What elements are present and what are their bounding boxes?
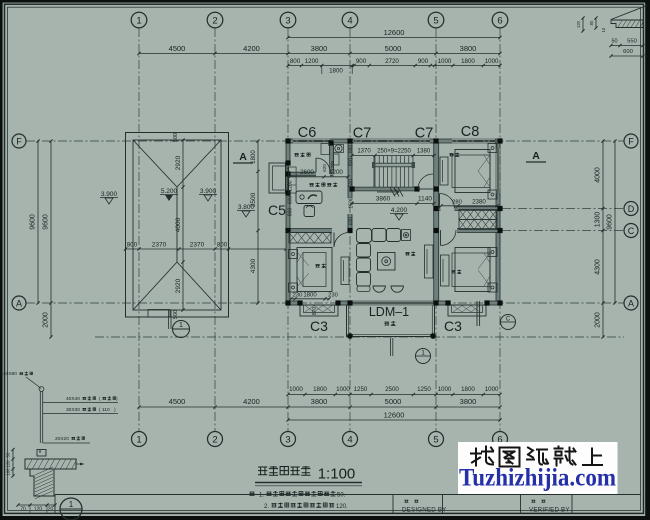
svg-text:550: 550 [627, 39, 637, 45]
svg-text:1.: 1. [259, 493, 264, 499]
svg-text:): ) [116, 396, 118, 402]
svg-text:(: ( [99, 407, 101, 413]
svg-text:30X30: 30X30 [66, 407, 80, 413]
svg-text:50: 50 [611, 39, 617, 45]
svg-text:40X80: 40X80 [3, 371, 17, 377]
svg-text:VERIFIED BY: VERIFIED BY [529, 507, 570, 514]
svg-text:20X20: 20X20 [55, 436, 69, 442]
svg-text:20: 20 [48, 507, 54, 513]
svg-text:120.: 120. [336, 504, 348, 510]
svg-text:100: 100 [6, 468, 11, 476]
svg-text:Tuzhizhijia.com: Tuzhizhijia.com [459, 463, 616, 492]
svg-text:120: 120 [6, 460, 11, 468]
svg-text:(: ( [99, 396, 101, 402]
svg-text:40X40: 40X40 [66, 396, 80, 402]
svg-text:2.: 2. [264, 504, 269, 510]
svg-text:50: 50 [6, 452, 11, 457]
svg-text:1: 1 [69, 500, 74, 509]
svg-text:): ) [114, 407, 116, 413]
svg-text:80: 80 [589, 20, 594, 25]
svg-text:1:100: 1:100 [318, 466, 356, 483]
svg-text:50.: 50. [337, 493, 346, 499]
svg-text:10: 10 [601, 27, 606, 32]
svg-text:600: 600 [623, 49, 633, 55]
svg-text:110: 110 [102, 407, 110, 413]
svg-text:70: 70 [20, 507, 26, 513]
svg-text:120: 120 [576, 20, 581, 28]
svg-text:120: 120 [34, 507, 43, 513]
svg-text:DESIGNED BY: DESIGNED BY [402, 507, 447, 514]
